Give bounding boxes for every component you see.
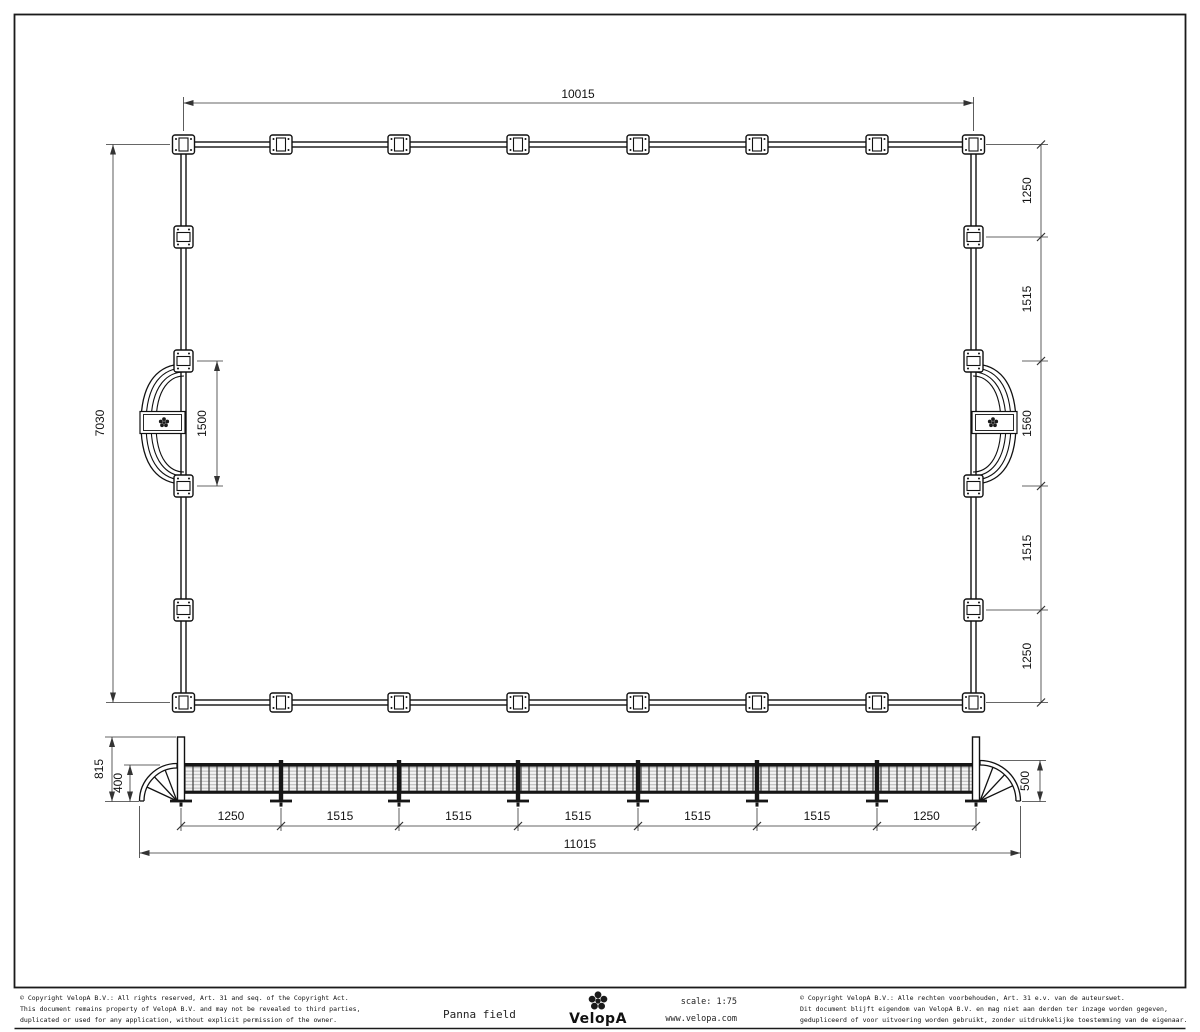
chain-label: 1515	[327, 809, 354, 823]
right-goal-height-label: 500	[1018, 771, 1032, 791]
elevation-view: 815 400 500 1250 1	[92, 737, 1046, 858]
drawing-sheet: 10015 7030 1500 1250 1515	[0, 0, 1200, 1032]
post-bracket	[507, 693, 529, 712]
goal-opening-label: 1500	[195, 410, 209, 437]
post-bracket	[746, 693, 768, 712]
chain-label: 1250	[1020, 177, 1034, 204]
website-link[interactable]: www.velopa.com	[665, 1014, 737, 1024]
right-goal-plan	[972, 364, 1017, 484]
scale-label: scale: 1:75	[681, 997, 737, 1007]
fence-top-rail	[184, 763, 973, 766]
sheet-border	[15, 15, 1186, 988]
fence-mesh	[185, 766, 973, 791]
post-bracket	[270, 135, 292, 154]
post-bracket	[388, 693, 410, 712]
chain-label: 1515	[1020, 534, 1034, 561]
post-bracket	[627, 135, 649, 154]
post-bracket	[964, 475, 983, 497]
post-bracket	[746, 135, 768, 154]
post-bracket	[507, 135, 529, 154]
chain-label: 1560	[1020, 410, 1034, 437]
post-bracket	[964, 350, 983, 372]
post-bracket	[270, 693, 292, 712]
plan-height-label: 7030	[93, 409, 107, 436]
chain-label: 1515	[565, 809, 592, 823]
copyright-en-line2: This document remains property of VelopA…	[20, 1005, 360, 1013]
post-bracket	[964, 599, 983, 621]
plan-view: 10015 7030 1500 1250 1515	[93, 87, 1048, 712]
copyright-nl-line3: gedupliceerd of voor uitvoering worden g…	[800, 1016, 1187, 1024]
post-height-label: 815	[92, 759, 106, 779]
post-bracket	[173, 135, 195, 154]
copyright-en-line1: © Copyright VelopA B.V.: All rights rese…	[20, 994, 349, 1002]
rail-brackets	[173, 135, 985, 712]
copyright-nl-line2: Dit document blijft eigendom van VelopA …	[800, 1005, 1168, 1013]
post-bracket	[174, 475, 193, 497]
chain-label: 1250	[913, 809, 940, 823]
chain-label: 1250	[1020, 643, 1034, 670]
post-bracket	[963, 135, 985, 154]
technical-drawing: 10015 7030 1500 1250 1515	[0, 0, 1200, 1032]
total-width-label: 11015	[564, 837, 597, 851]
fence-bottom-rail	[184, 791, 973, 794]
title-block: © Copyright VelopA B.V.: All rights rese…	[20, 991, 1187, 1027]
chain-label: 1515	[445, 809, 472, 823]
post-bracket	[174, 226, 193, 248]
post-bracket	[627, 693, 649, 712]
post-bracket	[174, 350, 193, 372]
brand-name: VelopA	[569, 1011, 627, 1027]
fence-rail-outer	[181, 142, 976, 705]
post-bracket	[866, 693, 888, 712]
drawing-title: Panna field	[443, 1008, 516, 1021]
copyright-en: © Copyright VelopA B.V.: All rights rese…	[20, 994, 360, 1024]
post-bracket	[866, 135, 888, 154]
copyright-en-line3: duplicated or used for any application, …	[20, 1016, 337, 1024]
plan-width-label: 10015	[561, 87, 595, 101]
plan-width-dimension	[184, 97, 974, 131]
chain-label: 1515	[1020, 285, 1034, 312]
left-goal-height-label: 400	[111, 773, 125, 793]
chain-label: 1250	[218, 809, 245, 823]
left-goal-plan	[140, 364, 185, 484]
velopa-flower-icon	[589, 991, 608, 1009]
post-bracket	[388, 135, 410, 154]
chain-label: 1515	[684, 809, 711, 823]
chain-label: 1515	[804, 809, 831, 823]
post-bracket	[173, 693, 195, 712]
fence-rail-inner	[186, 147, 971, 700]
velopa-logo: VelopA	[569, 991, 627, 1027]
copyright-nl-line1: © Copyright VelopA B.V.: Alle rechten vo…	[800, 994, 1125, 1002]
post-bracket	[174, 599, 193, 621]
post-bracket	[963, 693, 985, 712]
post-bracket	[964, 226, 983, 248]
copyright-nl: © Copyright VelopA B.V.: Alle rechten vo…	[800, 994, 1187, 1024]
